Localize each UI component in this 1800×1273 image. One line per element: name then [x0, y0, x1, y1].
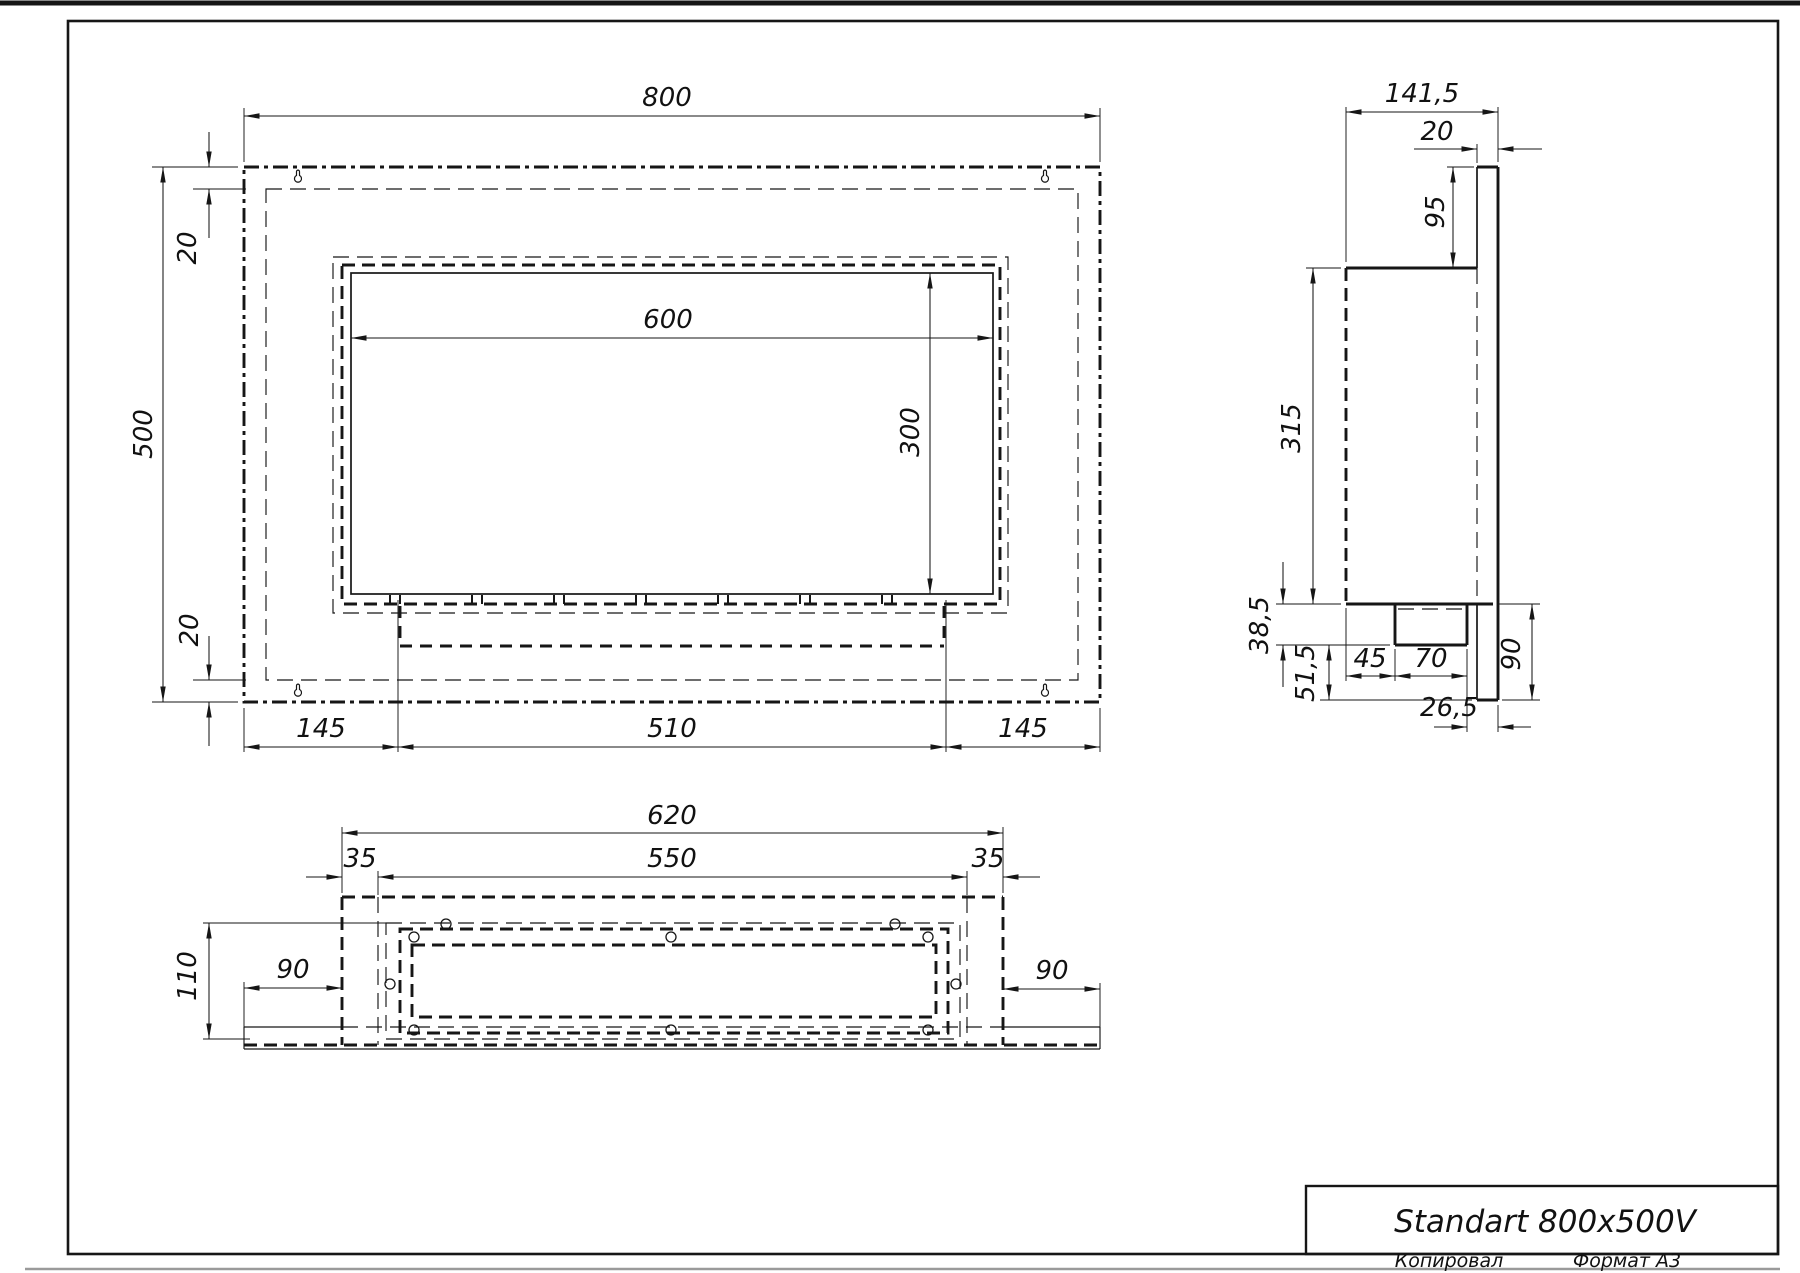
dim-box-depth: 110: [173, 951, 203, 1001]
dim-opening-width: 600: [643, 305, 693, 335]
side-view: 141,5 20 95 315 38,5 51,5: [1245, 79, 1542, 732]
dim-side-depth: 141,5: [1385, 79, 1459, 109]
screw-hole-icon: [441, 919, 451, 929]
copied-label: Копировал: [1395, 1250, 1504, 1272]
front-burner-tray: [400, 606, 944, 646]
dim-tray-depth: 70: [1414, 644, 1447, 674]
front-plate-outline: [244, 167, 1100, 702]
dim-front-width: 800: [642, 83, 692, 113]
dim-left-wing: 90: [276, 955, 309, 985]
dim-right-wing: 90: [1035, 956, 1068, 986]
drawing-frame: [0, 3, 1800, 1269]
side-burner-tray: [1395, 604, 1467, 645]
dim-top-offset: 95: [1421, 195, 1451, 228]
dim-inner-width: 550: [647, 844, 697, 874]
dim-tray-height: 38,5: [1245, 596, 1275, 654]
keyhole-icon: [295, 684, 302, 696]
front-plate-inset: [266, 189, 1078, 680]
dim-tray-setback: 45: [1353, 644, 1386, 674]
drawing-sheet: 800 500 20 600 300 20: [0, 0, 1800, 1273]
burner-frame-hidden: [386, 923, 960, 1039]
burner-box-inner: [412, 945, 936, 1017]
dim-front-top-margin: 20: [173, 231, 203, 264]
front-dimensions: 800 500 20 600 300 20: [129, 83, 1100, 752]
dim-plate-thickness: 20: [1420, 117, 1453, 147]
dim-opening-height: 300: [896, 407, 926, 457]
screw-hole-icon: [890, 919, 900, 929]
dim-tray-lip: 26,5: [1420, 693, 1478, 723]
keyhole-icon: [295, 170, 302, 182]
dim-left-margin: 35: [343, 844, 376, 874]
screw-hole-icon: [666, 932, 676, 942]
dim-front-bottom-margin: 20: [175, 613, 205, 646]
front-view: 800 500 20 600 300 20: [129, 83, 1100, 752]
dim-bottom-right: 145: [998, 714, 1048, 744]
screw-hole-icon: [385, 979, 395, 989]
bottom-dimensions: 620 35 550 35 110 90 90: [173, 801, 1100, 1039]
dim-body-height: 315: [1277, 403, 1307, 453]
title-block: Standart 800x500V Копировал Формат А3: [1306, 1186, 1778, 1272]
screw-hole-icon: [409, 932, 419, 942]
dim-right-margin: 35: [971, 844, 1004, 874]
dim-front-height: 500: [129, 409, 159, 459]
dim-lower-height: 90: [1497, 637, 1527, 670]
bottom-view: 620 35 550 35 110 90 90: [173, 801, 1100, 1049]
drawing-title: Standart 800x500V: [1394, 1204, 1699, 1240]
keyhole-icon: [1042, 170, 1049, 182]
dim-box-width: 620: [647, 801, 697, 831]
format-label: Формат А3: [1573, 1250, 1681, 1272]
dim-bottom-left: 145: [296, 714, 346, 744]
dim-bottom-gap: 51,5: [1291, 644, 1321, 702]
dim-bottom-center: 510: [647, 714, 697, 744]
screw-hole-icon: [923, 932, 933, 942]
keyhole-icon: [1042, 684, 1049, 696]
